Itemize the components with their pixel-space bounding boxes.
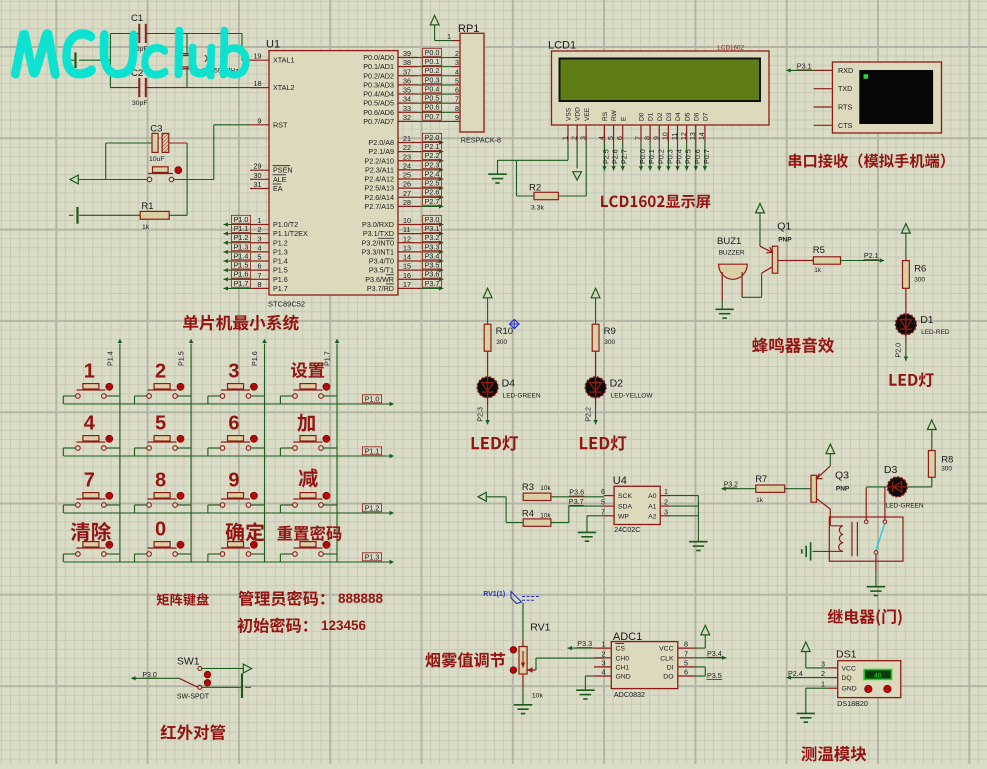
svg-text:LED-YELLOW: LED-YELLOW [611,392,654,399]
svg-text:27: 27 [403,189,411,198]
svg-text:31: 31 [254,180,262,189]
svg-text:VSS: VSS [566,107,573,121]
svg-text:2: 2 [664,498,668,507]
svg-text:P2.4/A12: P2.4/A12 [364,175,394,184]
svg-text:P2.7: P2.7 [425,197,440,206]
svg-text:P2.2: P2.2 [425,151,440,160]
svg-text:DS1: DS1 [836,648,857,660]
svg-text:P3.7/RD: P3.7/RD [367,284,394,293]
svg-text:XTAL2: XTAL2 [273,83,294,92]
svg-text:P1.2: P1.2 [365,503,380,512]
svg-text:P2.3/A11: P2.3/A11 [365,165,394,174]
svg-text:7: 7 [684,649,688,658]
svg-text:P1.3: P1.3 [234,242,249,251]
svg-text:RST: RST [273,120,288,129]
svg-text:P0.3: P0.3 [425,75,440,84]
svg-text:P0.0: P0.0 [425,48,440,57]
svg-text:P2.1: P2.1 [425,142,440,151]
svg-text:CS: CS [616,646,626,653]
svg-text:30pF: 30pF [132,100,148,107]
svg-text:P2.5/A13: P2.5/A13 [364,184,394,193]
svg-text:GND: GND [842,686,857,693]
svg-text:LED-RED: LED-RED [921,329,950,336]
svg-text:25: 25 [403,171,411,180]
svg-text:R7: R7 [755,474,767,485]
svg-text:R3: R3 [522,482,534,493]
svg-text:6: 6 [601,487,605,496]
svg-text:2: 2 [821,669,825,678]
svg-text:3: 3 [581,136,588,140]
svg-text:CLK: CLK [660,655,674,662]
svg-text:23: 23 [403,152,411,161]
svg-text:P1.5: P1.5 [234,261,249,270]
svg-text:D4: D4 [502,378,516,390]
svg-text:P1.4: P1.4 [234,251,249,260]
svg-text:P0.5/AD5: P0.5/AD5 [363,99,394,108]
svg-text:24: 24 [403,161,411,170]
svg-text:P1.4: P1.4 [273,257,288,266]
svg-text:39: 39 [403,49,411,58]
svg-text:P3.3: P3.3 [577,639,592,648]
svg-text:11: 11 [403,225,410,234]
svg-text:9: 9 [455,113,459,122]
svg-text:9: 9 [228,470,239,492]
svg-text:XTAL1: XTAL1 [273,56,294,65]
svg-text:P1.1: P1.1 [365,446,380,455]
svg-text:R10: R10 [496,326,513,337]
svg-text:D1: D1 [920,314,934,326]
svg-text:R4: R4 [522,508,534,519]
svg-text:1k: 1k [142,224,150,231]
svg-text:10k: 10k [532,693,544,700]
svg-text:R5: R5 [813,245,825,256]
svg-text:P2.3: P2.3 [476,407,485,422]
svg-text:38: 38 [403,58,411,67]
svg-text:2: 2 [455,49,459,58]
svg-text:5: 5 [455,76,459,85]
svg-text:P2.7: P2.7 [620,149,629,164]
svg-text:15: 15 [403,262,411,271]
svg-text:26: 26 [403,180,411,189]
svg-text:P0.2: P0.2 [656,149,665,164]
svg-text:P0.5: P0.5 [684,149,693,164]
svg-text:4: 4 [602,668,606,677]
svg-text:P0.5: P0.5 [425,94,440,103]
svg-text:4: 4 [258,243,262,252]
svg-text:1: 1 [447,32,451,41]
svg-text:1: 1 [258,216,262,225]
svg-text:P0.3/AD3: P0.3/AD3 [363,80,394,89]
svg-text:WP: WP [618,513,629,520]
svg-text:P1.5: P1.5 [273,266,288,275]
svg-text:P1.0: P1.0 [234,215,249,224]
svg-text:P0.7: P0.7 [425,112,440,121]
svg-text:LED-GREEN: LED-GREEN [886,503,924,510]
svg-text:3: 3 [228,361,239,383]
svg-text:8: 8 [155,470,166,492]
svg-text:7: 7 [601,507,605,516]
svg-text:888888: 888888 [338,591,384,606]
svg-text:P2.6/A14: P2.6/A14 [364,193,394,202]
svg-text:P3.4: P3.4 [707,649,722,658]
svg-text:40: 40 [874,672,882,679]
svg-text:8: 8 [455,104,459,113]
svg-text:D4: D4 [675,112,682,121]
svg-text:19: 19 [254,52,262,61]
svg-text:9: 9 [654,136,661,140]
svg-text:P3.5/T1: P3.5/T1 [369,266,394,275]
svg-text:P2.4: P2.4 [788,669,803,678]
svg-text:P3.6: P3.6 [425,270,440,279]
svg-text:RW: RW [611,109,618,121]
svg-text:R9: R9 [604,326,616,337]
svg-text:300: 300 [604,339,615,346]
svg-text:13: 13 [690,132,697,140]
svg-text:P3.0/RXD: P3.0/RXD [362,220,394,229]
svg-text:10: 10 [663,132,670,140]
svg-text:LCD1602: LCD1602 [717,45,744,52]
svg-text:TXD: TXD [838,84,852,93]
svg-text:RS: RS [602,111,609,121]
svg-text:6: 6 [258,262,262,271]
svg-text:8: 8 [684,640,688,649]
svg-text:CH0: CH0 [616,655,630,662]
svg-text:P3.1/TXD: P3.1/TXD [363,229,394,238]
svg-text:14: 14 [403,253,411,262]
svg-text:P0.0: P0.0 [638,149,647,164]
svg-text:SW1: SW1 [177,656,200,668]
svg-text:P0.2: P0.2 [425,66,440,75]
svg-text:10k: 10k [540,485,551,492]
svg-text:37: 37 [403,67,411,76]
svg-text:P2.0: P2.0 [425,133,440,142]
svg-text:P1.2: P1.2 [234,233,249,242]
svg-text:RP1: RP1 [458,23,479,35]
svg-text:5: 5 [608,136,615,140]
svg-text:1: 1 [821,680,825,689]
svg-text:Q1: Q1 [777,221,791,233]
svg-text:18: 18 [254,79,262,88]
svg-text:P3.2/INT0: P3.2/INT0 [362,238,394,247]
svg-text:A2: A2 [648,513,657,520]
svg-text:U1: U1 [266,39,280,51]
svg-text:BUZZER: BUZZER [719,250,745,257]
svg-text:P2.0: P2.0 [894,343,903,358]
svg-text:LCD1: LCD1 [548,40,576,52]
svg-text:P2.5: P2.5 [602,149,611,164]
svg-text:D7: D7 [703,112,710,121]
svg-text:CTS: CTS [838,121,853,130]
svg-text:P3.5: P3.5 [707,671,722,680]
svg-text:EA: EA [273,184,283,193]
svg-text:2: 2 [155,361,166,383]
svg-text:33: 33 [403,104,411,113]
svg-text:22: 22 [403,143,411,152]
svg-text:1: 1 [562,136,569,140]
svg-text:RV1: RV1 [530,621,550,633]
svg-text:LED-GREEN: LED-GREEN [503,392,541,399]
svg-text:RESPACK-8: RESPACK-8 [461,136,501,145]
svg-text:3: 3 [455,58,459,67]
svg-text:SW-SPDT: SW-SPDT [177,694,210,701]
svg-text:3: 3 [664,507,668,516]
svg-text:P3.5: P3.5 [425,261,440,270]
svg-text:CH1: CH1 [616,664,630,671]
svg-text:P1.1: P1.1 [234,224,249,233]
svg-text:VCC: VCC [659,646,673,653]
svg-text:12: 12 [681,132,688,140]
svg-text:ADC0832: ADC0832 [614,690,645,699]
svg-text:3.3k: 3.3k [531,205,544,212]
svg-text:10: 10 [403,216,411,225]
svg-text:P1.0: P1.0 [365,394,380,403]
svg-text:C1: C1 [131,13,143,24]
svg-text:12: 12 [403,234,411,243]
svg-text:ALE: ALE [273,175,287,184]
svg-text:4: 4 [455,67,459,76]
svg-text:P2.1/A9: P2.1/A9 [368,147,394,156]
svg-text:30: 30 [254,171,262,180]
svg-text:PNP: PNP [836,485,850,492]
svg-text:P1.1/T2EX: P1.1/T2EX [273,229,308,238]
svg-text:9: 9 [258,116,262,125]
svg-text:21: 21 [403,134,411,143]
svg-text:R6: R6 [914,264,926,275]
svg-text:A1: A1 [648,504,657,511]
svg-text:RTS: RTS [838,103,852,112]
svg-text:P0.7: P0.7 [702,149,711,164]
svg-text:11: 11 [672,133,679,140]
svg-text:3: 3 [821,659,825,668]
svg-text:1: 1 [602,640,606,649]
svg-text:P0.4: P0.4 [675,149,684,164]
svg-text:VEE: VEE [584,107,591,121]
svg-text:P3.1: P3.1 [425,224,440,233]
svg-text:123456: 123456 [321,618,367,633]
svg-text:6: 6 [455,86,459,95]
svg-text:P0.1/AD1: P0.1/AD1 [363,62,394,71]
svg-text:P3.7: P3.7 [569,497,584,506]
svg-text:5: 5 [684,658,688,667]
svg-text:D1: D1 [648,112,655,121]
svg-text:3: 3 [602,658,606,667]
svg-text:P1.7: P1.7 [273,284,288,293]
svg-text:P3.3: P3.3 [425,242,440,251]
svg-text:29: 29 [254,162,262,171]
svg-text:P0.6: P0.6 [425,103,440,112]
svg-text:VDD: VDD [575,107,582,121]
svg-text:SDA: SDA [618,504,632,511]
svg-text:P3.0: P3.0 [425,215,440,224]
svg-text:DQ: DQ [842,675,852,682]
svg-text:P3.2: P3.2 [425,233,440,242]
svg-text:34: 34 [403,95,411,104]
svg-text:24C02C: 24C02C [614,525,640,534]
svg-text:32: 32 [403,113,411,122]
svg-text:8: 8 [258,280,262,289]
svg-text:P2.2/A10: P2.2/A10 [364,156,394,165]
svg-text:RXD: RXD [838,66,853,75]
svg-text:300: 300 [496,339,507,346]
svg-text:P2.3: P2.3 [425,160,440,169]
svg-text:P3.4: P3.4 [425,251,440,260]
svg-text:P2.5: P2.5 [425,179,440,188]
svg-text:1k: 1k [756,497,764,504]
svg-text:P2.0/A8: P2.0/A8 [368,138,394,147]
svg-text:DO: DO [663,674,673,681]
svg-text:3: 3 [258,234,262,243]
svg-text:P0.6: P0.6 [693,149,702,164]
svg-text:D3: D3 [666,112,673,121]
svg-text:P1.3: P1.3 [365,552,380,561]
svg-text:2: 2 [258,225,262,234]
svg-text:5: 5 [155,413,166,435]
svg-text:28: 28 [403,198,411,207]
svg-text:P1.3: P1.3 [273,247,288,256]
svg-text:300: 300 [941,466,952,473]
svg-text:Q3: Q3 [835,470,849,482]
svg-text:P2.2: P2.2 [584,407,593,422]
svg-text:P1.2: P1.2 [273,238,288,247]
svg-text:P1.4: P1.4 [105,351,114,366]
svg-text:R1: R1 [141,201,153,212]
svg-text:P3.3/INT1: P3.3/INT1 [362,247,394,256]
svg-text:P0.0/AD0: P0.0/AD0 [363,53,394,62]
svg-text:RV1(1): RV1(1) [483,591,505,598]
svg-text:P2.6: P2.6 [611,149,620,164]
svg-text:D2: D2 [657,112,664,121]
svg-text:STC89C52: STC89C52 [268,300,305,309]
svg-text:P2.6: P2.6 [425,188,440,197]
svg-text:4: 4 [84,413,96,435]
svg-text:P0.4: P0.4 [425,84,440,93]
svg-text:P1.6: P1.6 [273,275,288,284]
svg-text:16: 16 [403,271,411,280]
svg-text:1: 1 [84,361,95,383]
svg-text:2: 2 [571,136,578,140]
svg-text:SCK: SCK [618,493,632,500]
svg-text:D0: D0 [639,112,646,121]
svg-text:D2: D2 [610,378,624,390]
svg-text:P2.7/A15: P2.7/A15 [364,202,394,211]
svg-text:8: 8 [644,136,651,140]
svg-text:D6: D6 [693,112,700,121]
svg-text:4: 4 [599,136,606,140]
svg-text:VCC: VCC [842,665,856,672]
svg-text:P3.1: P3.1 [797,62,812,71]
svg-text:35: 35 [403,86,411,95]
svg-text:P0.7/AD7: P0.7/AD7 [363,117,394,126]
svg-text:P0.3: P0.3 [665,149,674,164]
svg-text:DI: DI [667,664,674,671]
svg-text:D3: D3 [884,464,898,476]
svg-text:1: 1 [664,487,668,496]
svg-text:BUZ1: BUZ1 [717,236,741,247]
svg-text:P2.1: P2.1 [864,251,879,260]
svg-text:P0.1: P0.1 [647,149,656,164]
svg-text:P0.1: P0.1 [425,57,440,66]
svg-text:P3.6/WR: P3.6/WR [365,275,394,284]
svg-text:P3.4/T0: P3.4/T0 [369,257,394,266]
svg-text:PNP: PNP [778,237,792,244]
svg-text:6: 6 [684,668,688,677]
svg-text:36: 36 [403,76,411,85]
svg-text:P2.4: P2.4 [425,169,440,178]
svg-text:P0.6/AD6: P0.6/AD6 [363,108,394,117]
svg-text:14: 14 [699,132,706,140]
svg-text:P3.7: P3.7 [425,279,440,288]
svg-text:5: 5 [258,253,262,262]
svg-text:2: 2 [602,649,606,658]
svg-text:P1.6: P1.6 [234,270,249,279]
svg-text:P0.4/AD4: P0.4/AD4 [363,90,394,99]
svg-text:DS18B20: DS18B20 [837,699,868,708]
svg-text:PSEN: PSEN [273,166,293,175]
svg-text:P3.6: P3.6 [569,488,584,497]
svg-text:6: 6 [228,413,239,435]
svg-text:GND: GND [616,674,631,681]
svg-text:U4: U4 [613,475,627,487]
svg-text:17: 17 [403,280,411,289]
svg-text:P1.7: P1.7 [323,351,332,366]
svg-text:7: 7 [84,470,95,492]
svg-text:6: 6 [617,136,624,140]
svg-text:7: 7 [455,95,459,104]
svg-text:0: 0 [155,519,166,541]
svg-text:A0: A0 [648,493,657,500]
svg-text:R8: R8 [941,455,953,466]
svg-text:7: 7 [635,136,642,140]
svg-text:10uF: 10uF [149,156,165,163]
svg-text:P1.5: P1.5 [177,351,186,366]
svg-text:D5: D5 [684,112,691,121]
svg-text:1k: 1k [814,267,822,274]
svg-text:5: 5 [601,498,605,507]
svg-text:P1.7: P1.7 [234,279,249,288]
svg-text:7: 7 [258,271,262,280]
svg-text:E: E [620,116,627,121]
svg-text:P1.6: P1.6 [250,351,259,366]
svg-text:P1.0/T2: P1.0/T2 [273,220,298,229]
svg-text:13: 13 [403,243,411,252]
svg-text:300: 300 [914,277,925,284]
svg-text:P0.2/AD2: P0.2/AD2 [363,71,394,80]
